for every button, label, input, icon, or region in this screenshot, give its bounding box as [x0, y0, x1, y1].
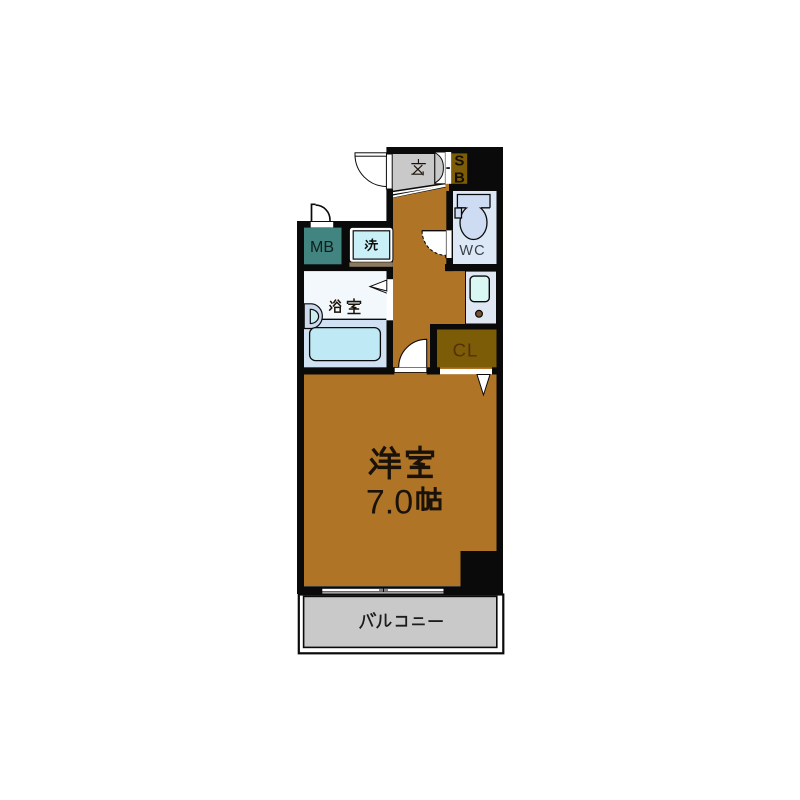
svg-text:B: B [454, 170, 465, 187]
svg-text:S: S [454, 153, 464, 170]
svg-text:WC: WC [459, 243, 485, 259]
svg-text:MB: MB [310, 239, 334, 256]
svg-text:CL: CL [453, 340, 479, 361]
svg-text:7.0: 7.0 [366, 484, 413, 522]
